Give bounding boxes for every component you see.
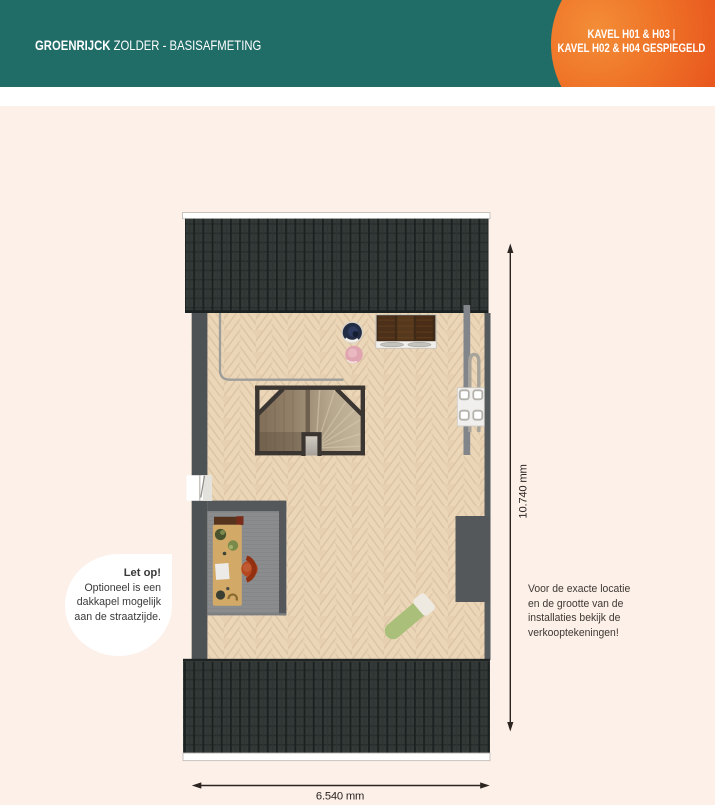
svg-text:6.540 mm: 6.540 mm: [316, 791, 364, 803]
svg-text:10.740 mm: 10.740 mm: [518, 464, 530, 518]
